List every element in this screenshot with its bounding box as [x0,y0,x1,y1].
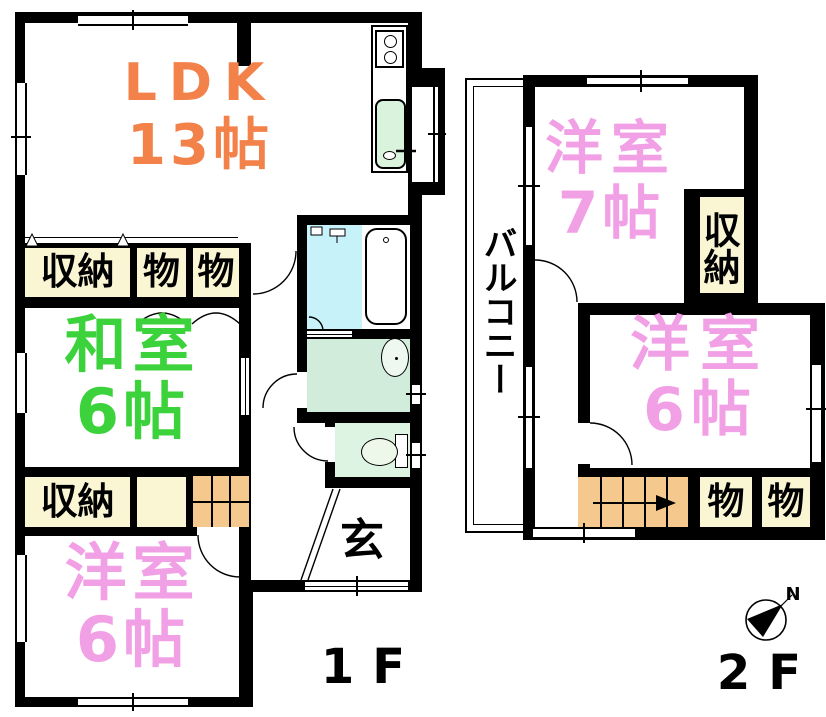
room-ldk-label: LDK 13帖 [90,56,310,175]
door-arc-toilet [294,427,328,461]
closet-door-marker [117,234,129,246]
floorplan-canvas: 収納 物 物 収納 [0,0,826,717]
room-ldk-name: LDK [90,56,310,111]
room-youshitsu-6-2f-label: 洋室 6帖 [615,314,785,442]
room-youshitsu-1f-label: 洋室 6帖 [50,540,215,672]
compass-north-label: N [783,586,803,605]
room-youshitsu-7-size: 7帖 [532,183,690,244]
door-arc-room7-2f [535,260,577,302]
genkan-step-line [301,489,333,580]
closet-door-marker [26,234,38,246]
room-youshitsu-6-2f-name: 洋室 [615,314,785,377]
door-arc-hall [253,251,296,294]
door-arc-washroom [263,374,297,408]
room-washitsu-size: 6帖 [50,379,215,444]
balcony-label: バルコニー [470,186,522,436]
floor-1f-label: 1F [312,642,432,692]
stairs-arrow [656,495,676,511]
room-youshitsu-7-label: 洋室 7帖 [532,118,690,244]
room-youshitsu-7-name: 洋室 [532,118,690,179]
door-arc-bathroom [309,317,323,331]
genkan-label: 玄 [332,518,392,564]
room-ldk-size: 13帖 [90,117,310,176]
room-youshitsu-6-2f-size: 6帖 [615,379,785,442]
room-washitsu-label: 和室 6帖 [50,312,215,444]
bath-faucet [330,229,345,236]
closet-2f-label: 収納 [699,200,745,296]
room-youshitsu-1f-size: 6帖 [50,607,215,672]
room-youshitsu-1f-name: 洋室 [50,540,215,605]
room-washitsu-name: 和室 [50,312,215,377]
bath-faucet [311,227,322,235]
floor-2f-label: 2F [708,648,826,698]
